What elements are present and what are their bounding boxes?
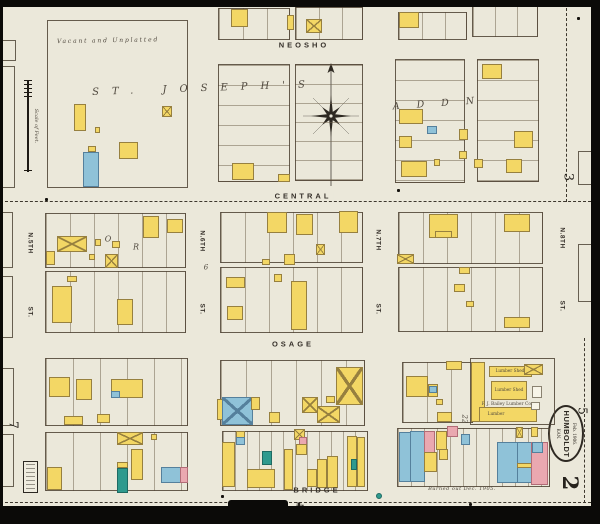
building bbox=[482, 64, 502, 79]
page-number: 2 bbox=[557, 476, 578, 491]
building bbox=[296, 214, 313, 235]
building bbox=[222, 397, 253, 425]
match-line bbox=[584, 338, 585, 503]
hydrant-dot bbox=[45, 198, 48, 201]
building bbox=[296, 444, 307, 455]
water-feature-dot bbox=[376, 493, 382, 499]
building bbox=[410, 431, 425, 482]
building bbox=[302, 397, 318, 413]
note-box bbox=[23, 461, 38, 493]
street-label: ST. bbox=[27, 307, 34, 318]
building bbox=[83, 152, 99, 187]
building bbox=[95, 127, 100, 133]
building bbox=[466, 301, 474, 307]
map-overlay: Scale of Feet. Feb. 1906. HUMBOLDT KAN. … bbox=[0, 0, 600, 524]
building bbox=[269, 412, 280, 423]
building bbox=[357, 437, 365, 487]
match-line bbox=[0, 201, 591, 202]
building bbox=[151, 434, 157, 440]
building bbox=[67, 276, 77, 282]
building bbox=[143, 216, 159, 238]
building bbox=[447, 426, 458, 437]
building bbox=[167, 219, 183, 233]
building bbox=[274, 274, 282, 282]
page-number: 7 bbox=[6, 421, 18, 429]
plat-annotation: 22 bbox=[461, 415, 468, 424]
building bbox=[531, 427, 538, 437]
building bbox=[327, 456, 338, 488]
building bbox=[439, 449, 448, 460]
street-label: N.8TH bbox=[559, 227, 566, 248]
plat-annotation: R bbox=[133, 244, 139, 252]
building bbox=[287, 15, 294, 30]
sanborn-map-sheet: Scale of Feet. Feb. 1906. HUMBOLDT KAN. … bbox=[0, 0, 600, 524]
building bbox=[262, 259, 270, 265]
building bbox=[434, 159, 440, 166]
building bbox=[532, 442, 543, 453]
scale-label: Scale of Feet. bbox=[34, 109, 39, 144]
street-label: BRIDGE bbox=[293, 487, 340, 495]
hydrant-dot bbox=[577, 17, 580, 20]
building bbox=[461, 434, 470, 445]
building bbox=[399, 12, 419, 28]
building bbox=[232, 163, 254, 180]
photo-border-bottom bbox=[0, 506, 600, 524]
building bbox=[74, 104, 86, 131]
building bbox=[424, 452, 437, 472]
city-block bbox=[472, 6, 538, 37]
photo-border-right bbox=[591, 0, 600, 524]
building bbox=[226, 277, 245, 288]
building bbox=[46, 251, 55, 265]
building bbox=[131, 449, 143, 480]
building bbox=[429, 386, 437, 393]
building bbox=[336, 367, 363, 405]
building bbox=[401, 161, 427, 177]
building bbox=[437, 412, 452, 422]
building bbox=[459, 151, 467, 159]
building bbox=[117, 299, 133, 325]
plat-annotation: O bbox=[105, 236, 112, 244]
building bbox=[307, 469, 317, 487]
building bbox=[317, 406, 340, 423]
building bbox=[514, 131, 533, 148]
building bbox=[517, 463, 532, 468]
building bbox=[247, 469, 275, 488]
street-label: ST. bbox=[199, 304, 206, 315]
building bbox=[47, 467, 62, 490]
stamp-city: HUMBOLDT bbox=[562, 405, 570, 462]
building bbox=[162, 106, 172, 117]
building bbox=[306, 19, 322, 33]
building bbox=[117, 432, 143, 445]
building bbox=[427, 126, 437, 134]
scale-bar-end-tick bbox=[24, 170, 32, 171]
building bbox=[339, 211, 358, 233]
photo-border-top bbox=[0, 0, 600, 7]
plat-annotation: Burned out Dec. 1905. bbox=[428, 487, 496, 492]
stamp-date: Feb. 1906. bbox=[572, 419, 576, 449]
building bbox=[316, 244, 325, 255]
building bbox=[436, 399, 443, 405]
plat-annotation: Lumber Shed bbox=[495, 388, 524, 392]
building bbox=[117, 468, 128, 493]
building bbox=[516, 427, 523, 438]
city-block bbox=[47, 20, 188, 188]
building bbox=[326, 396, 335, 403]
street-label: OSAGE bbox=[272, 341, 314, 349]
building bbox=[111, 391, 120, 398]
building bbox=[474, 159, 483, 168]
hydrant-dot bbox=[221, 495, 224, 498]
building bbox=[291, 281, 307, 330]
building bbox=[231, 9, 248, 27]
photo-border-left bbox=[0, 0, 3, 524]
building bbox=[119, 142, 138, 159]
building bbox=[504, 317, 530, 328]
street-label: ST. bbox=[559, 301, 566, 312]
edge-parcel bbox=[1, 66, 15, 188]
building bbox=[236, 437, 245, 445]
photo-border-bump bbox=[228, 500, 288, 510]
building bbox=[504, 214, 530, 232]
building bbox=[262, 451, 272, 465]
note-box-text-lines bbox=[26, 464, 35, 490]
building bbox=[89, 254, 95, 260]
plat-annotation: Lumber bbox=[488, 412, 505, 416]
building bbox=[436, 431, 447, 450]
building bbox=[64, 416, 83, 425]
building bbox=[112, 241, 120, 248]
building bbox=[49, 377, 70, 397]
street-label: N.6TH bbox=[199, 230, 206, 251]
scale-bar-ticks bbox=[24, 80, 32, 98]
building bbox=[506, 159, 522, 173]
building bbox=[284, 254, 295, 265]
plat-annotation: 6 bbox=[204, 265, 208, 272]
building bbox=[524, 364, 543, 375]
building bbox=[459, 267, 470, 274]
building bbox=[180, 467, 188, 483]
building bbox=[222, 442, 235, 487]
building bbox=[278, 174, 290, 182]
building bbox=[406, 376, 428, 397]
street-label: NEOSHO bbox=[279, 42, 330, 50]
building bbox=[284, 449, 293, 490]
city-block bbox=[218, 8, 290, 40]
plat-annotation: Lumber Shed bbox=[496, 369, 525, 373]
building bbox=[435, 231, 452, 238]
building bbox=[251, 397, 260, 410]
building bbox=[227, 306, 243, 320]
building bbox=[497, 442, 518, 483]
street-label: N.7TH bbox=[375, 229, 382, 250]
building bbox=[52, 286, 72, 323]
building bbox=[317, 459, 327, 488]
building bbox=[397, 254, 414, 264]
stamp-state: KAN. bbox=[556, 419, 560, 449]
building bbox=[97, 414, 110, 423]
hydrant-dot bbox=[397, 189, 400, 192]
street-label: CENTRAL bbox=[272, 193, 333, 201]
building bbox=[95, 239, 101, 246]
building bbox=[76, 379, 92, 400]
building bbox=[424, 431, 435, 453]
page-number: 3 bbox=[561, 173, 574, 181]
building bbox=[105, 254, 118, 268]
building bbox=[399, 136, 412, 148]
building bbox=[446, 361, 462, 370]
building bbox=[459, 129, 468, 140]
building bbox=[532, 386, 542, 398]
street-label: N.5TH bbox=[27, 232, 34, 253]
building bbox=[454, 284, 465, 292]
page-number: 5 bbox=[575, 407, 587, 415]
edge-parcel bbox=[1, 40, 16, 61]
street-label: ST. bbox=[375, 304, 382, 315]
plat-annotation: F. J. Bailey Lumber Co. bbox=[482, 402, 533, 406]
building bbox=[267, 212, 287, 233]
building bbox=[57, 236, 87, 252]
